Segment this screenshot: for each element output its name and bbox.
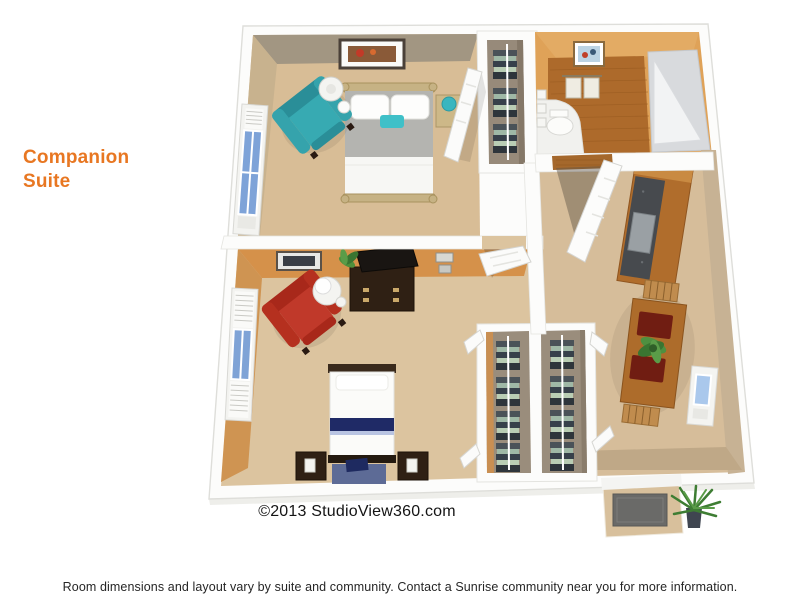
dining-chair-bottom	[622, 404, 660, 426]
bedroom-1	[233, 34, 480, 236]
toilet-accessories	[537, 90, 546, 127]
doormat	[613, 494, 667, 526]
bathroom-wall-art	[574, 42, 604, 66]
bedroom2-wall-art	[277, 252, 321, 270]
page: Companion Suite	[0, 0, 800, 606]
copyright-text: ©2013 StudioView360.com	[242, 503, 472, 521]
bathroom	[535, 32, 712, 156]
bedroom1-wall-art	[340, 40, 404, 68]
bed-1	[341, 83, 437, 203]
nightstand-2-right	[398, 452, 428, 480]
walk-in-closet-top	[477, 31, 539, 173]
living-window	[687, 366, 718, 426]
nightstand-2-left	[296, 452, 326, 480]
bottom-closets	[460, 323, 614, 482]
disclaimer-text: Room dimensions and layout vary by suite…	[0, 580, 800, 594]
dining-chair-top	[643, 280, 679, 302]
bed-2	[328, 364, 396, 463]
